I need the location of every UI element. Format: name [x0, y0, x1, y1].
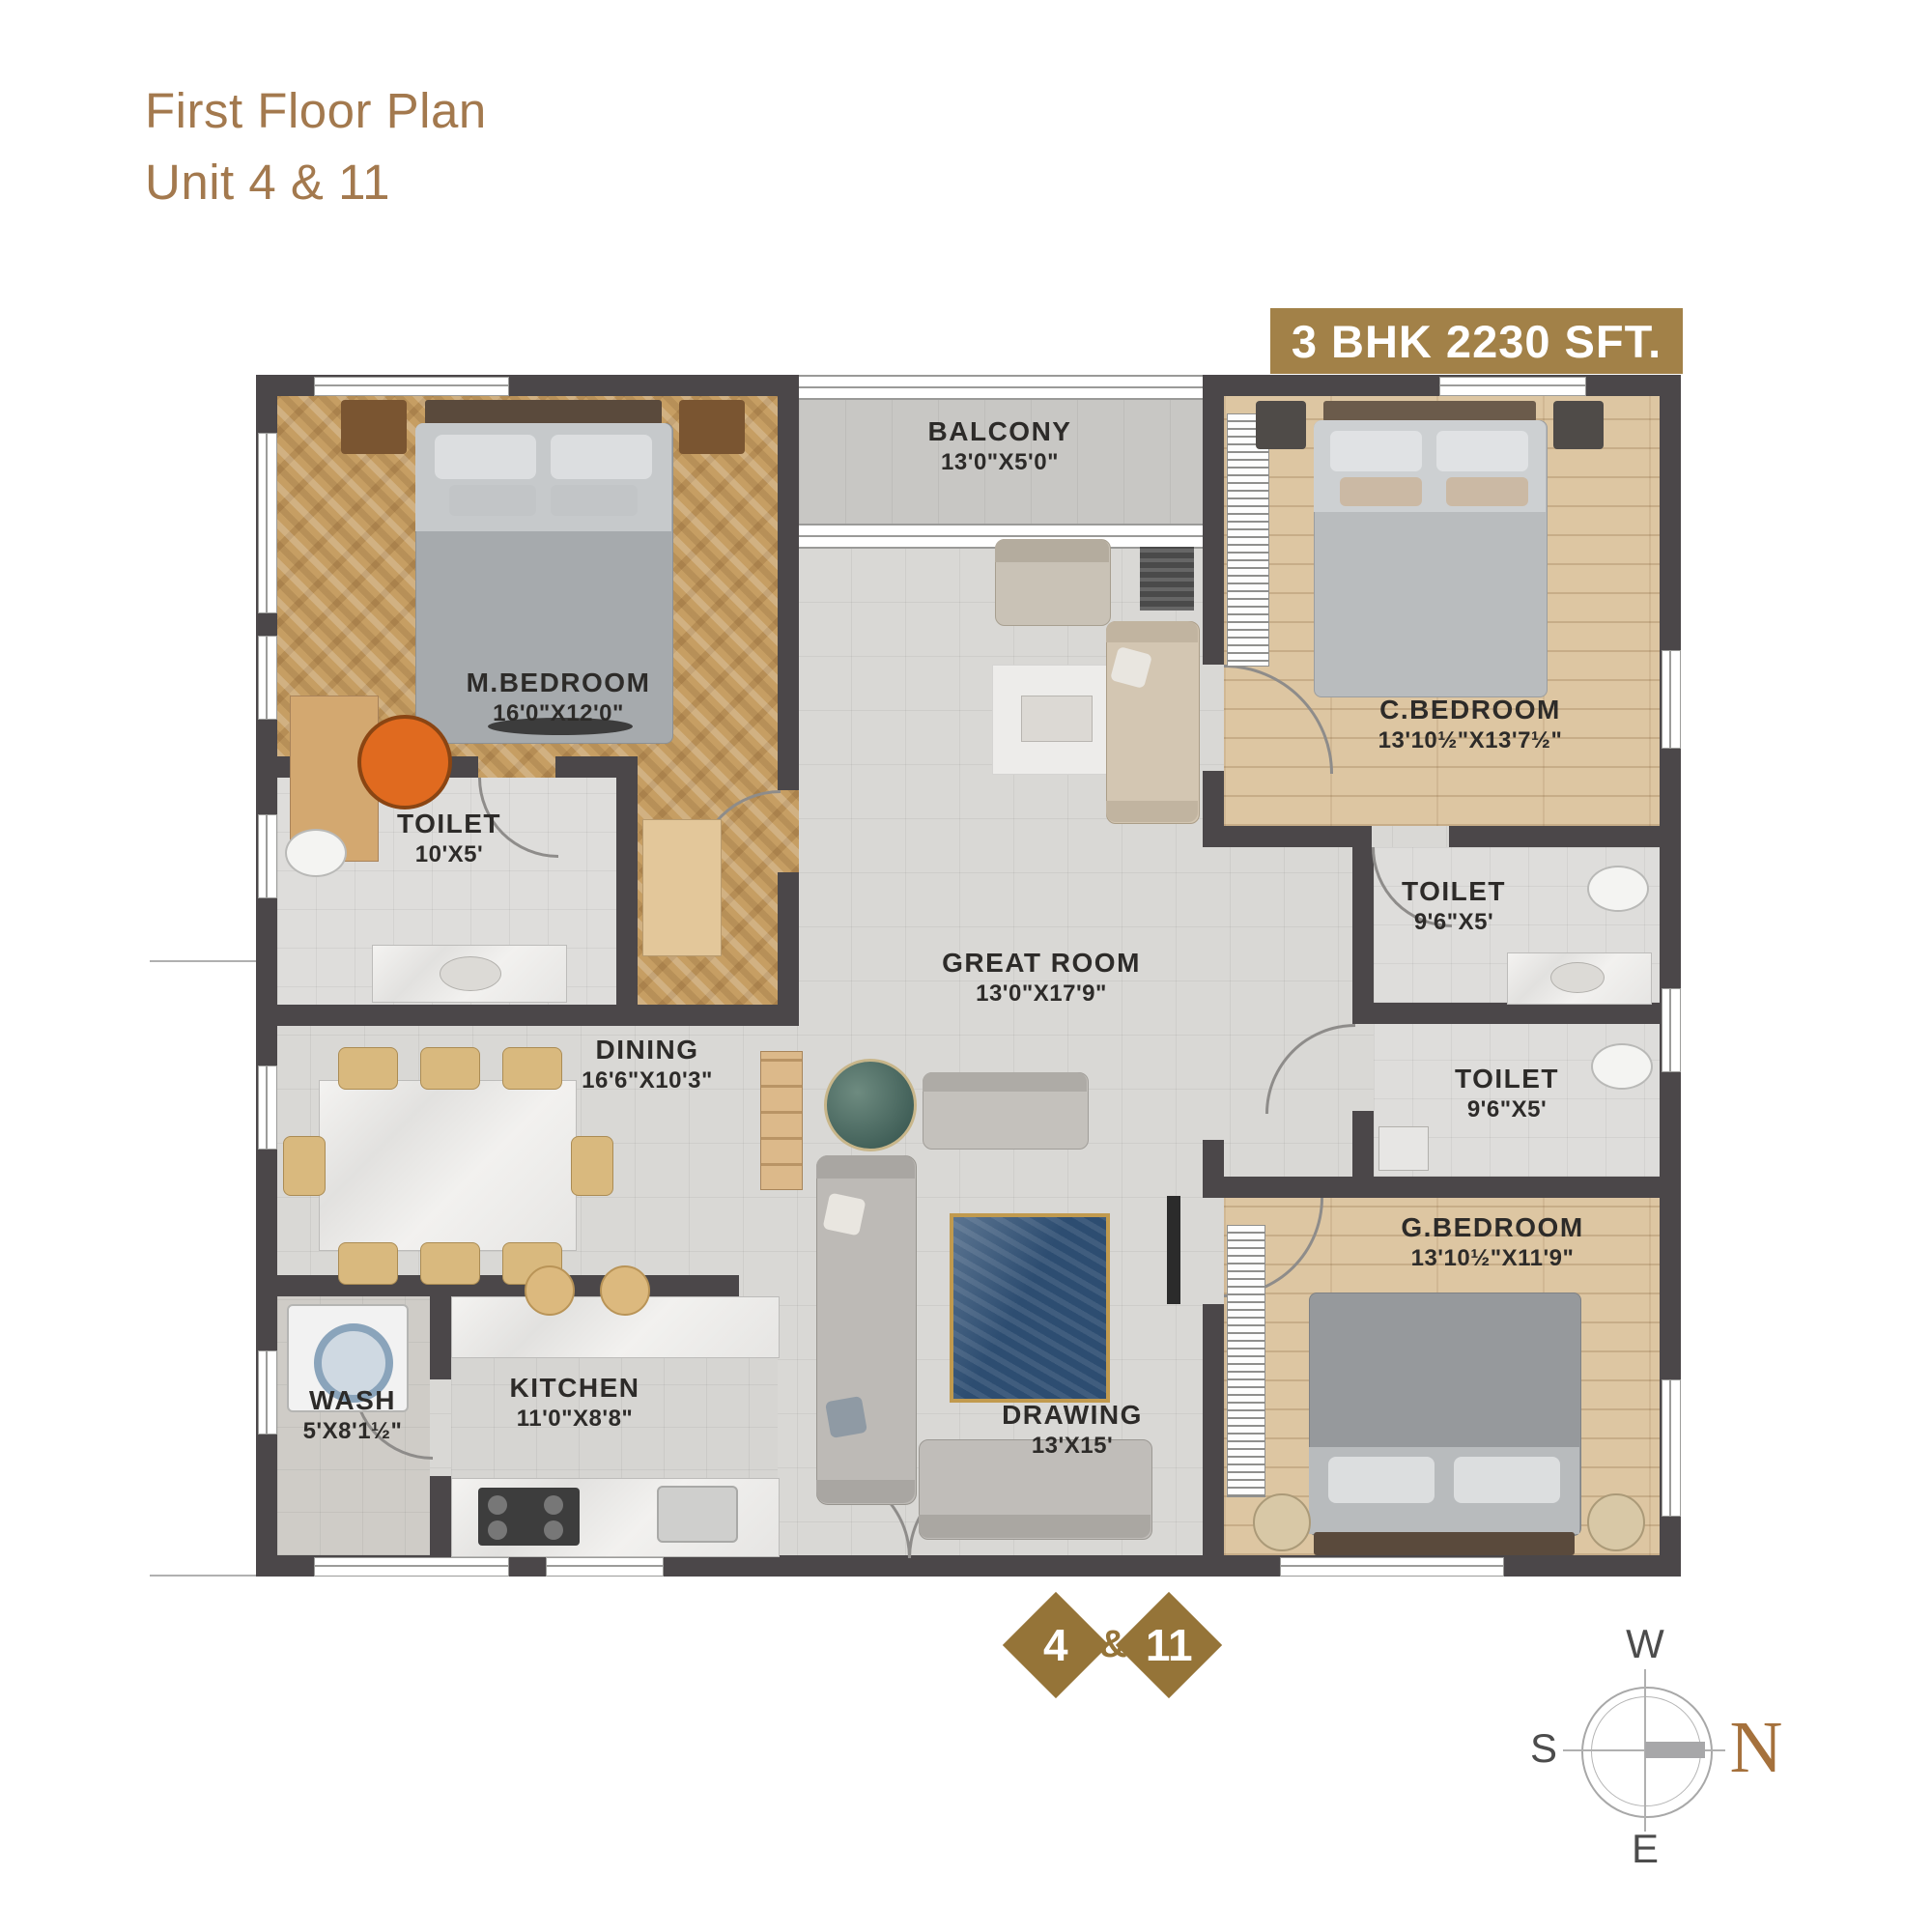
- label-wash: WASH 5'X8'1½": [303, 1384, 403, 1445]
- wash-basin: [1378, 1126, 1429, 1171]
- room-name: G.BEDROOM: [1401, 1211, 1583, 1244]
- label-toilet-g: TOILET 9'6"X5': [1455, 1063, 1559, 1123]
- counter-stool: [600, 1265, 650, 1316]
- kitchen-sink: [657, 1486, 738, 1543]
- dining-chair: [502, 1047, 562, 1090]
- room-name: BALCONY: [928, 415, 1072, 448]
- room-name: TOILET: [1455, 1063, 1559, 1095]
- compass-east-label: E: [1632, 1826, 1659, 1872]
- window-bottom-kitchen-2: [546, 1557, 664, 1577]
- room-name: GREAT ROOM: [942, 947, 1141, 980]
- sofa-armrest: [816, 1480, 915, 1503]
- window-left-2: [258, 636, 277, 720]
- room-name: M.BEDROOM: [467, 667, 651, 699]
- toilet-bowl: [1591, 1043, 1653, 1090]
- label-dining: DINING 16'6"X10'3": [582, 1034, 713, 1094]
- unit-badge-4: 4: [1003, 1592, 1109, 1698]
- side-table: [1253, 1493, 1311, 1551]
- wall-gbedroom-top: [1224, 1177, 1660, 1198]
- window-left-5: [258, 1350, 277, 1435]
- wall-mbedroom-right-upper: [778, 375, 799, 790]
- label-kitchen: KITCHEN 11'0"X8'8": [510, 1372, 640, 1433]
- room-dims: 13'10½"X13'7½": [1378, 726, 1563, 754]
- room-dims: 10'X5': [397, 840, 501, 868]
- floor-plan: M.BEDROOM 16'0"X12'0" BALCONY 13'0"X5'0"…: [256, 375, 1681, 1577]
- window-bottom-gbedroom: [1280, 1557, 1504, 1577]
- room-name: TOILET: [397, 808, 501, 840]
- label-toilet-c: TOILET 9'6"X5': [1402, 875, 1506, 936]
- sofa-pillow: [822, 1192, 866, 1236]
- pillow: [551, 435, 652, 479]
- label-toilet-m: TOILET 10'X5': [397, 808, 501, 868]
- wash-basin: [440, 956, 501, 991]
- section-line: [150, 1575, 256, 1577]
- unit-badge-11: 11: [1116, 1592, 1222, 1698]
- room-dims: 13'10½"X11'9": [1401, 1244, 1583, 1272]
- wall-toilet-m-right: [616, 756, 638, 1026]
- wall-cbedroom-bottom-right: [1449, 826, 1660, 847]
- dining-table: [319, 1080, 577, 1251]
- room-dims: 13'0"X17'9": [942, 980, 1141, 1008]
- wall-gbedroom-left-lower: [1203, 1304, 1224, 1577]
- room-dims: 16'0"X12'0": [467, 699, 651, 727]
- sofa-armrest: [1106, 621, 1198, 642]
- tv-drawing: [1167, 1196, 1180, 1304]
- pillow: [435, 435, 536, 479]
- room-dims: 13'0"X5'0": [928, 448, 1072, 476]
- room-dims: 9'6"X5': [1402, 908, 1506, 936]
- compass-west-label: W: [1626, 1621, 1664, 1667]
- room-name: DINING: [582, 1034, 713, 1066]
- section-line: [150, 960, 256, 962]
- sofa-back: [923, 1072, 1087, 1092]
- room-dims: 11'0"X8'8": [510, 1405, 640, 1433]
- armchair-back: [995, 539, 1109, 562]
- pillow: [1454, 1457, 1560, 1503]
- title-line2: Unit 4 & 11: [145, 147, 487, 218]
- unit-number: 11: [1146, 1619, 1193, 1671]
- sofa-armrest: [816, 1155, 915, 1179]
- dining-chair: [571, 1136, 613, 1196]
- floor-plan-page: First Floor Plan Unit 4 & 11 3 BHK 2230 …: [0, 0, 1932, 1932]
- wall-wash-kitchen-upper: [430, 1296, 451, 1379]
- dining-chair: [338, 1242, 398, 1285]
- dining-chair: [420, 1242, 480, 1285]
- coffee-table: [1021, 696, 1093, 742]
- window-top-mbedroom: [314, 377, 509, 396]
- round-table-green: [824, 1059, 917, 1151]
- compass-north-pointer-icon: [1645, 1742, 1705, 1758]
- wall-mbedroom-right-lower: [778, 872, 799, 1026]
- room-name: TOILET: [1402, 875, 1506, 908]
- stove-burner: [488, 1520, 507, 1540]
- nightstand: [679, 400, 745, 454]
- wall-toilet-divider: [1374, 1003, 1660, 1024]
- sofa-pillow: [825, 1396, 867, 1438]
- pillow-small: [449, 485, 536, 516]
- room-name: WASH: [303, 1384, 403, 1417]
- sofa-armrest: [1106, 801, 1198, 822]
- counter-stool: [525, 1265, 575, 1316]
- wall-toilets-left-upper: [1352, 847, 1374, 1024]
- label-mbedroom: M.BEDROOM 16'0"X12'0": [467, 667, 651, 727]
- pillow: [1328, 1457, 1435, 1503]
- label-balcony: BALCONY 13'0"X5'0": [928, 415, 1072, 476]
- side-table: [1587, 1493, 1645, 1551]
- label-gbedroom: G.BEDROOM 13'10½"X11'9": [1401, 1211, 1583, 1272]
- label-drawing: DRAWING 13'X15': [1002, 1399, 1143, 1460]
- area-badge: 3 BHK 2230 SFT.: [1270, 308, 1683, 374]
- pillow-small: [551, 485, 638, 516]
- pillow-small: [1446, 477, 1528, 506]
- wardrobe-gbedroom: [1227, 1225, 1265, 1497]
- window-right-1: [1662, 650, 1681, 749]
- balcony-railing: [799, 375, 1203, 400]
- dining-chair: [338, 1047, 398, 1090]
- title-line1: First Floor Plan: [145, 75, 487, 147]
- dining-chair: [283, 1136, 326, 1196]
- compass-south-label: S: [1530, 1725, 1557, 1772]
- label-greatroom: GREAT ROOM 13'0"X17'9": [942, 947, 1141, 1008]
- toilet-bowl: [285, 829, 347, 877]
- window-left-1: [258, 433, 277, 613]
- window-right-2: [1662, 988, 1681, 1072]
- wall-toilet-m-top-right: [555, 756, 616, 778]
- compass-north-label: N: [1730, 1706, 1783, 1790]
- window-left-3: [258, 814, 277, 898]
- crockery-unit: [760, 1051, 803, 1190]
- room-dims: 13'X15': [1002, 1432, 1143, 1460]
- door-toilet-g: [1265, 1024, 1355, 1114]
- window-right-3: [1662, 1379, 1681, 1517]
- bed-headboard: [425, 400, 662, 425]
- wardrobe-nook: [642, 819, 722, 956]
- sofa-back: [919, 1515, 1151, 1538]
- window-left-4: [258, 1065, 277, 1150]
- pillow-small: [1340, 477, 1422, 506]
- room-name: C.BEDROOM: [1378, 694, 1563, 726]
- stove-burner: [544, 1495, 563, 1515]
- nightstand: [1256, 401, 1306, 449]
- wall-dining-top: [256, 1005, 799, 1026]
- window-bottom-kitchen: [314, 1557, 509, 1577]
- wash-basin: [1550, 962, 1605, 993]
- pillow: [1330, 431, 1422, 471]
- bed-headboard: [1323, 401, 1536, 422]
- cabinet-great-room: [1140, 547, 1194, 611]
- desk-chair: [357, 715, 452, 810]
- rug-drawing: [950, 1213, 1110, 1403]
- wall-cbedroom-left-upper: [1203, 375, 1224, 665]
- toilet-bowl: [1587, 866, 1649, 912]
- room-dims: 9'6"X5': [1455, 1095, 1559, 1123]
- unit-number: 4: [1043, 1619, 1068, 1671]
- pillow: [1436, 431, 1528, 471]
- bed-headboard: [1314, 1532, 1575, 1555]
- dining-chair: [420, 1047, 480, 1090]
- room-name: KITCHEN: [510, 1372, 640, 1405]
- page-title: First Floor Plan Unit 4 & 11: [145, 75, 487, 218]
- label-cbedroom: C.BEDROOM 13'10½"X13'7½": [1378, 694, 1563, 754]
- window-top-cbedroom: [1439, 377, 1586, 396]
- wall-gbedroom-left-upper: [1203, 1140, 1224, 1198]
- room-dims: 16'6"X10'3": [582, 1066, 713, 1094]
- wall-cbedroom-bottom-left: [1224, 826, 1372, 847]
- wall-kitchen-top: [256, 1275, 739, 1296]
- room-name: DRAWING: [1002, 1399, 1143, 1432]
- wall-cbedroom-left-lower: [1203, 771, 1224, 847]
- stove-burner: [544, 1520, 563, 1540]
- room-dims: 5'X8'1½": [303, 1417, 403, 1445]
- wardrobe-cbedroom: [1227, 413, 1269, 667]
- stove-burner: [488, 1495, 507, 1515]
- nightstand: [1553, 401, 1604, 449]
- nightstand: [341, 400, 407, 454]
